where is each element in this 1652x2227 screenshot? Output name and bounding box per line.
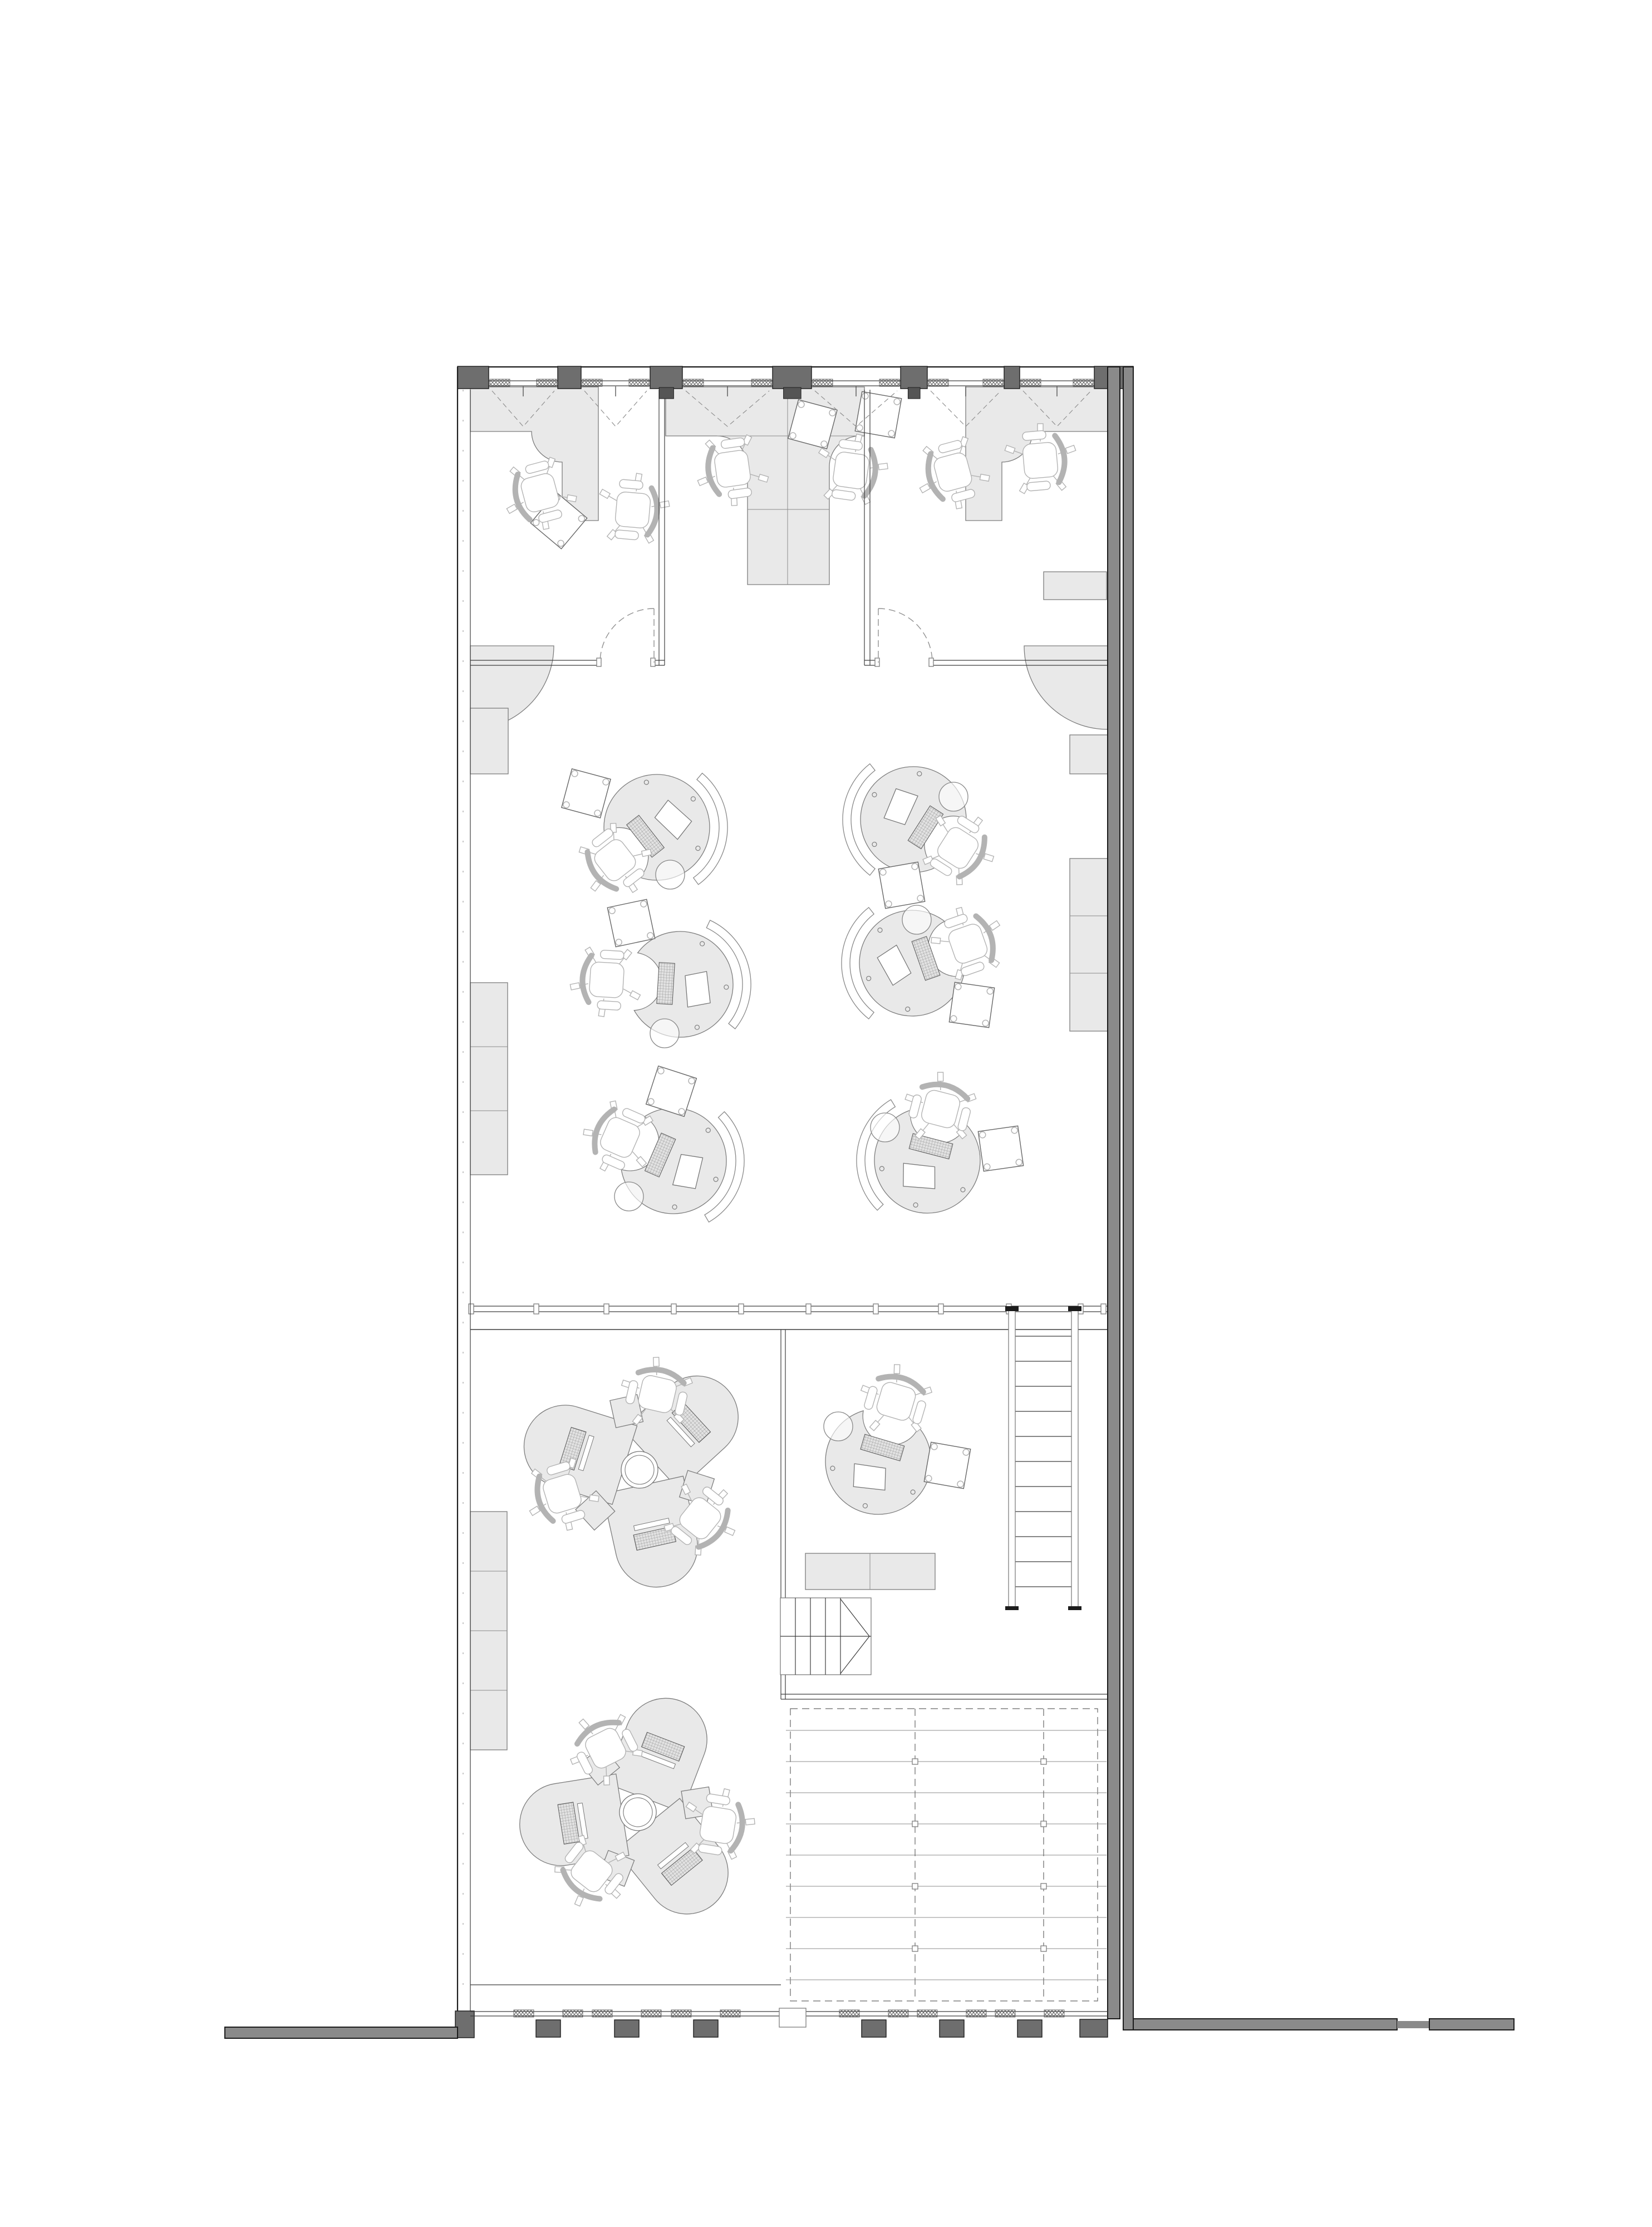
neighbour-wall-right-gap <box>1397 2021 1429 2028</box>
partition-post <box>873 1304 878 1314</box>
office-right-cabinet <box>1044 572 1107 600</box>
trefoil-cluster <box>486 1298 811 1626</box>
partition-post <box>469 1304 474 1314</box>
window-frame-hatch <box>563 2010 583 2017</box>
trefoil-cluster <box>488 1657 796 1946</box>
joist-node <box>912 1883 918 1889</box>
window-frame-hatch <box>1044 2010 1064 2017</box>
facade-pier <box>862 2020 886 2037</box>
pedestal-round <box>902 905 931 934</box>
facade-pier <box>901 366 927 389</box>
joist-node <box>1041 1883 1046 1889</box>
floor-plan-drawing: Office floor plan - top-down monochrome … <box>0 0 1652 2227</box>
circular-workstation <box>633 929 736 1040</box>
window-frame-hatch <box>514 2010 534 2017</box>
roof-void-grid <box>781 1694 1108 2001</box>
partition-post <box>806 1304 811 1314</box>
task-chair <box>596 470 672 545</box>
pedestal-round <box>656 860 685 889</box>
window-frame-hatch <box>592 2010 612 2017</box>
facade-pier <box>650 366 682 389</box>
side-table <box>878 862 925 908</box>
window-frame-hatch <box>839 2010 859 2017</box>
window-frame-hatch <box>995 2010 1015 2017</box>
cabinet <box>1070 735 1108 774</box>
neighbour-wall-right-b <box>1429 2019 1514 2030</box>
floor-plan-page: Office floor plan - top-down monochrome … <box>0 0 1652 2227</box>
facade-pier <box>1004 366 1020 389</box>
partition-post <box>1101 1304 1106 1314</box>
door-swing <box>600 609 654 663</box>
side-table <box>949 982 994 1027</box>
window-frame-hatch <box>966 2010 986 2017</box>
partition-post <box>938 1304 943 1314</box>
facade-pier <box>694 2020 718 2037</box>
furniture-layer <box>470 387 1108 1945</box>
joist-node <box>912 1946 918 1951</box>
compact-stair <box>780 1598 871 1675</box>
joist-node <box>1041 1759 1046 1764</box>
left-wall <box>455 367 474 2038</box>
quarter-table-right <box>1024 646 1108 729</box>
pedestal-round <box>650 1019 679 1048</box>
facade-door-pier <box>779 2008 806 2027</box>
partition-post <box>671 1304 676 1314</box>
right-party-wall <box>1108 367 1133 2030</box>
side-table <box>978 1126 1023 1171</box>
cabinet-stack-left-middle <box>470 983 508 1175</box>
partition-layer <box>469 390 1108 2001</box>
window-frame-hatch <box>1073 379 1093 386</box>
side-table <box>646 1066 697 1117</box>
cabinet-stack-lower-left <box>470 1512 507 1750</box>
window-frame-hatch <box>917 2010 937 2017</box>
side-table <box>607 899 655 946</box>
side-table <box>562 769 611 818</box>
bottom-facade <box>470 2008 1108 2037</box>
neighbour-wall-left <box>225 2027 458 2038</box>
building-shell <box>225 366 1514 2038</box>
window-frame-hatch <box>537 379 557 386</box>
joist-node <box>1041 1821 1046 1827</box>
pier-tab <box>908 387 920 399</box>
stair-stringer <box>1009 1309 1015 1609</box>
cabinet <box>470 708 508 774</box>
pedestal-round <box>824 1412 853 1441</box>
pier-tab <box>784 387 802 399</box>
window-frame-hatch <box>928 379 948 386</box>
window-frame-hatch <box>490 379 510 386</box>
cabinet-low-small-room <box>805 1553 935 1590</box>
window-frame-hatch <box>720 2010 740 2017</box>
window-frame-hatch <box>879 379 899 386</box>
window-frame-hatch <box>684 379 704 386</box>
side-table <box>924 1442 970 1488</box>
window-frame-hatch <box>888 2010 908 2017</box>
pedestal-round <box>614 1182 643 1211</box>
door-swing <box>878 609 932 663</box>
facade-pier <box>773 366 812 389</box>
joist-node <box>912 1821 918 1827</box>
window-frame-hatch <box>582 379 602 386</box>
pedestal-round <box>871 1113 899 1142</box>
window-frame-hatch <box>751 379 771 386</box>
window-frame-hatch <box>983 379 1003 386</box>
facade-pier <box>614 2020 639 2037</box>
cabinet-stack-right-middle <box>1070 859 1108 1031</box>
main-stair <box>1005 1306 1081 1610</box>
partition-post <box>739 1304 744 1314</box>
facade-pier <box>1017 2020 1042 2037</box>
partition-post <box>604 1304 609 1314</box>
joist-node <box>912 1759 918 1764</box>
facade-pier <box>558 366 581 389</box>
joist-node <box>1041 1946 1046 1951</box>
facade-pier <box>536 2020 560 2037</box>
window-frame-hatch <box>813 379 833 386</box>
pedestal-round <box>939 782 968 811</box>
window-frame-hatch <box>629 379 649 386</box>
neighbour-wall-right-a <box>1133 2019 1397 2030</box>
partition-post <box>534 1304 539 1314</box>
side-table <box>855 391 901 438</box>
pier-tab <box>659 387 673 399</box>
facade-pier <box>458 366 489 389</box>
window-frame-hatch <box>671 2010 691 2017</box>
window-frame-hatch <box>1021 379 1041 386</box>
window-frame-hatch <box>641 2010 661 2017</box>
facade-pier <box>940 2020 964 2037</box>
task-chair <box>568 946 643 1019</box>
stair-stringer <box>1071 1309 1078 1609</box>
